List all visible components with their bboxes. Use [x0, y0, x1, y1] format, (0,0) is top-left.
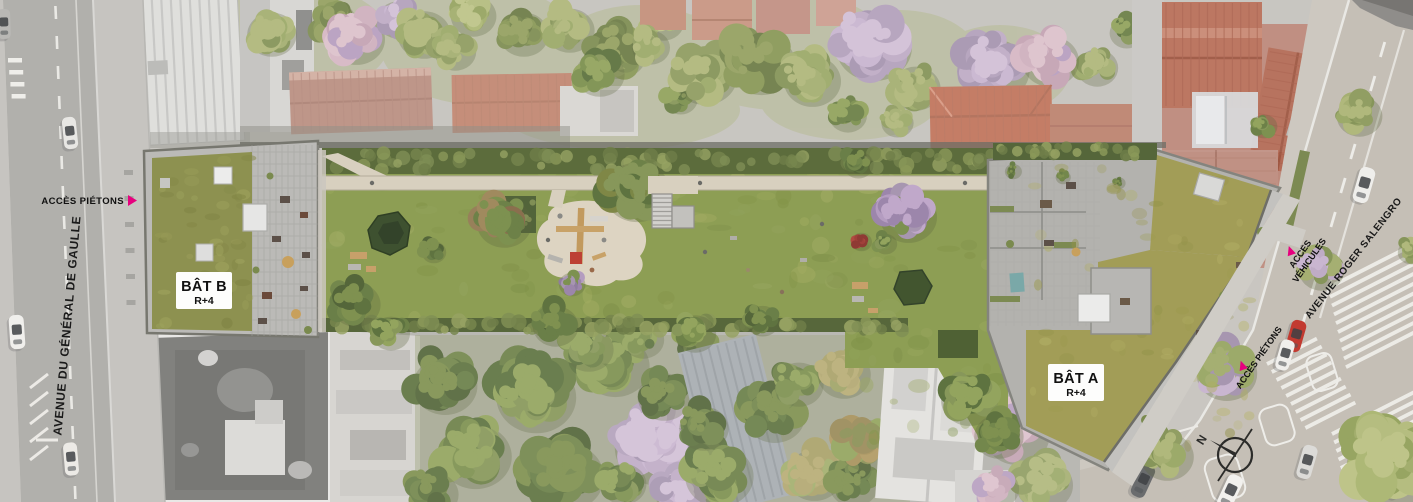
svg-text:ACCÈS PIÉTONS: ACCÈS PIÉTONS: [41, 196, 124, 207]
svg-text:R+4: R+4: [1066, 387, 1086, 399]
svg-text:BÂT B: BÂT B: [181, 277, 227, 295]
svg-text:BÂT A: BÂT A: [1053, 369, 1098, 387]
svg-text:R+4: R+4: [194, 295, 214, 307]
